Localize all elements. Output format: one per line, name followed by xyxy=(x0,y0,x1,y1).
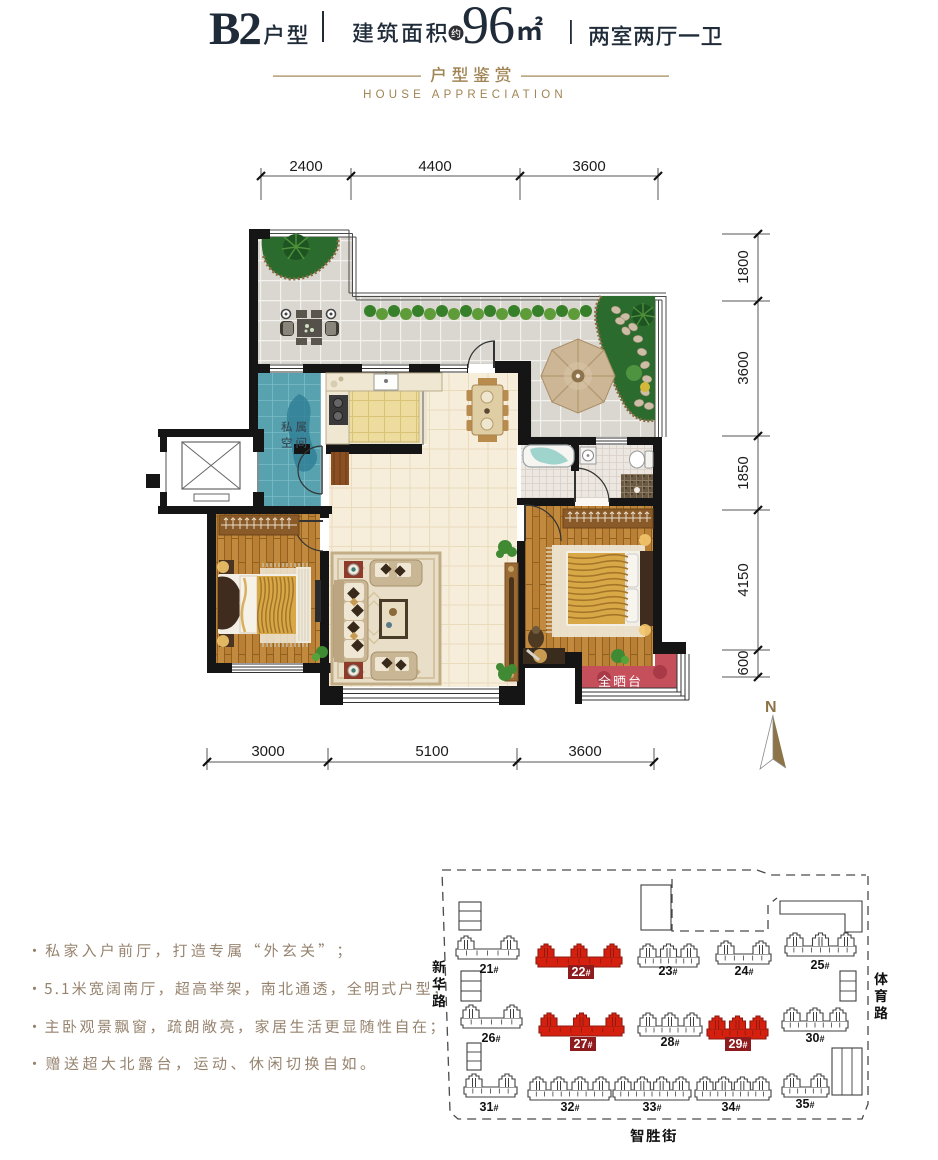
svg-text:600: 600 xyxy=(735,650,752,675)
svg-text:31#: 31# xyxy=(480,1100,499,1114)
svg-text:3600: 3600 xyxy=(735,351,752,384)
svg-text:23#: 23# xyxy=(659,964,678,978)
svg-text:96: 96 xyxy=(462,0,514,55)
svg-text:24#: 24# xyxy=(735,964,754,978)
svg-text:32#: 32# xyxy=(561,1100,580,1114)
svg-text:27#: 27# xyxy=(574,1037,593,1051)
svg-text:30#: 30# xyxy=(806,1031,825,1045)
svg-text:B2: B2 xyxy=(209,3,260,55)
svg-text:35#: 35# xyxy=(796,1097,815,1111)
svg-text:N: N xyxy=(765,699,777,716)
svg-text:3000: 3000 xyxy=(251,743,284,760)
svg-text:3600: 3600 xyxy=(572,158,605,175)
svg-text:4400: 4400 xyxy=(418,158,451,175)
svg-text:1800: 1800 xyxy=(735,250,752,283)
svg-text:HOUSE APPRECIATION: HOUSE APPRECIATION xyxy=(363,89,567,101)
svg-text:22#: 22# xyxy=(572,965,591,979)
svg-text:25#: 25# xyxy=(811,958,830,972)
svg-text:28#: 28# xyxy=(661,1035,680,1049)
svg-text:33#: 33# xyxy=(643,1100,662,1114)
svg-text:21#: 21# xyxy=(480,962,499,976)
svg-text:3600: 3600 xyxy=(568,743,601,760)
svg-text:29#: 29# xyxy=(729,1037,748,1051)
svg-text:4150: 4150 xyxy=(735,563,752,596)
svg-text:5100: 5100 xyxy=(415,743,448,760)
svg-text:1850: 1850 xyxy=(735,456,752,489)
svg-text:34#: 34# xyxy=(722,1100,741,1114)
svg-text:26#: 26# xyxy=(482,1031,501,1045)
svg-text:2400: 2400 xyxy=(289,158,322,175)
